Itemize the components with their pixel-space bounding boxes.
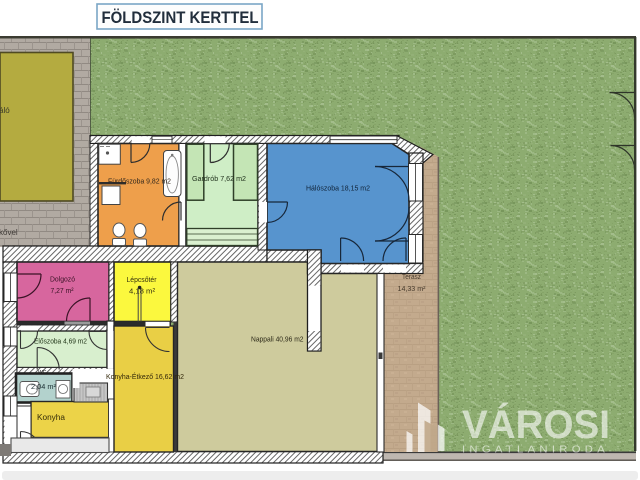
svg-text:7,27 m²: 7,27 m² — [51, 286, 74, 295]
svg-text:FÖLDSZINT KERTTEL: FÖLDSZINT KERTTEL — [102, 8, 259, 27]
svg-text:WC: WC — [38, 370, 47, 376]
svg-text:áló: áló — [0, 106, 10, 115]
svg-text:Terasz: Terasz — [402, 274, 421, 281]
svg-text:Gardrób 7,62 m2: Gardrób 7,62 m2 — [192, 174, 246, 183]
svg-text:Nappali 40,96 m2: Nappali 40,96 m2 — [251, 334, 304, 343]
svg-text:INGATLANIRODA: INGATLANIRODA — [462, 444, 609, 456]
svg-text:Fürdőszoba 9,82 m2: Fürdőszoba 9,82 m2 — [108, 177, 171, 186]
svg-text:Dolgozó: Dolgozó — [50, 274, 75, 283]
svg-text:Hálószoba 18,15 m2: Hálószoba 18,15 m2 — [306, 184, 370, 193]
svg-text:Konyha: Konyha — [37, 412, 65, 422]
svg-text:Konyha-Étkező 16,62 m2: Konyha-Étkező 16,62 m2 — [106, 372, 184, 381]
svg-text:Előszoba 4,69 m2: Előszoba 4,69 m2 — [34, 336, 87, 345]
svg-text:4,18 m²: 4,18 m² — [129, 287, 155, 296]
svg-text:kővel: kővel — [0, 228, 18, 237]
svg-text:14,33 m²: 14,33 m² — [398, 286, 427, 293]
svg-text:VÁROSI: VÁROSI — [462, 402, 610, 447]
svg-text:Lépcsőtér: Lépcsőtér — [127, 275, 157, 284]
svg-text:2,04 m²: 2,04 m² — [31, 382, 57, 391]
